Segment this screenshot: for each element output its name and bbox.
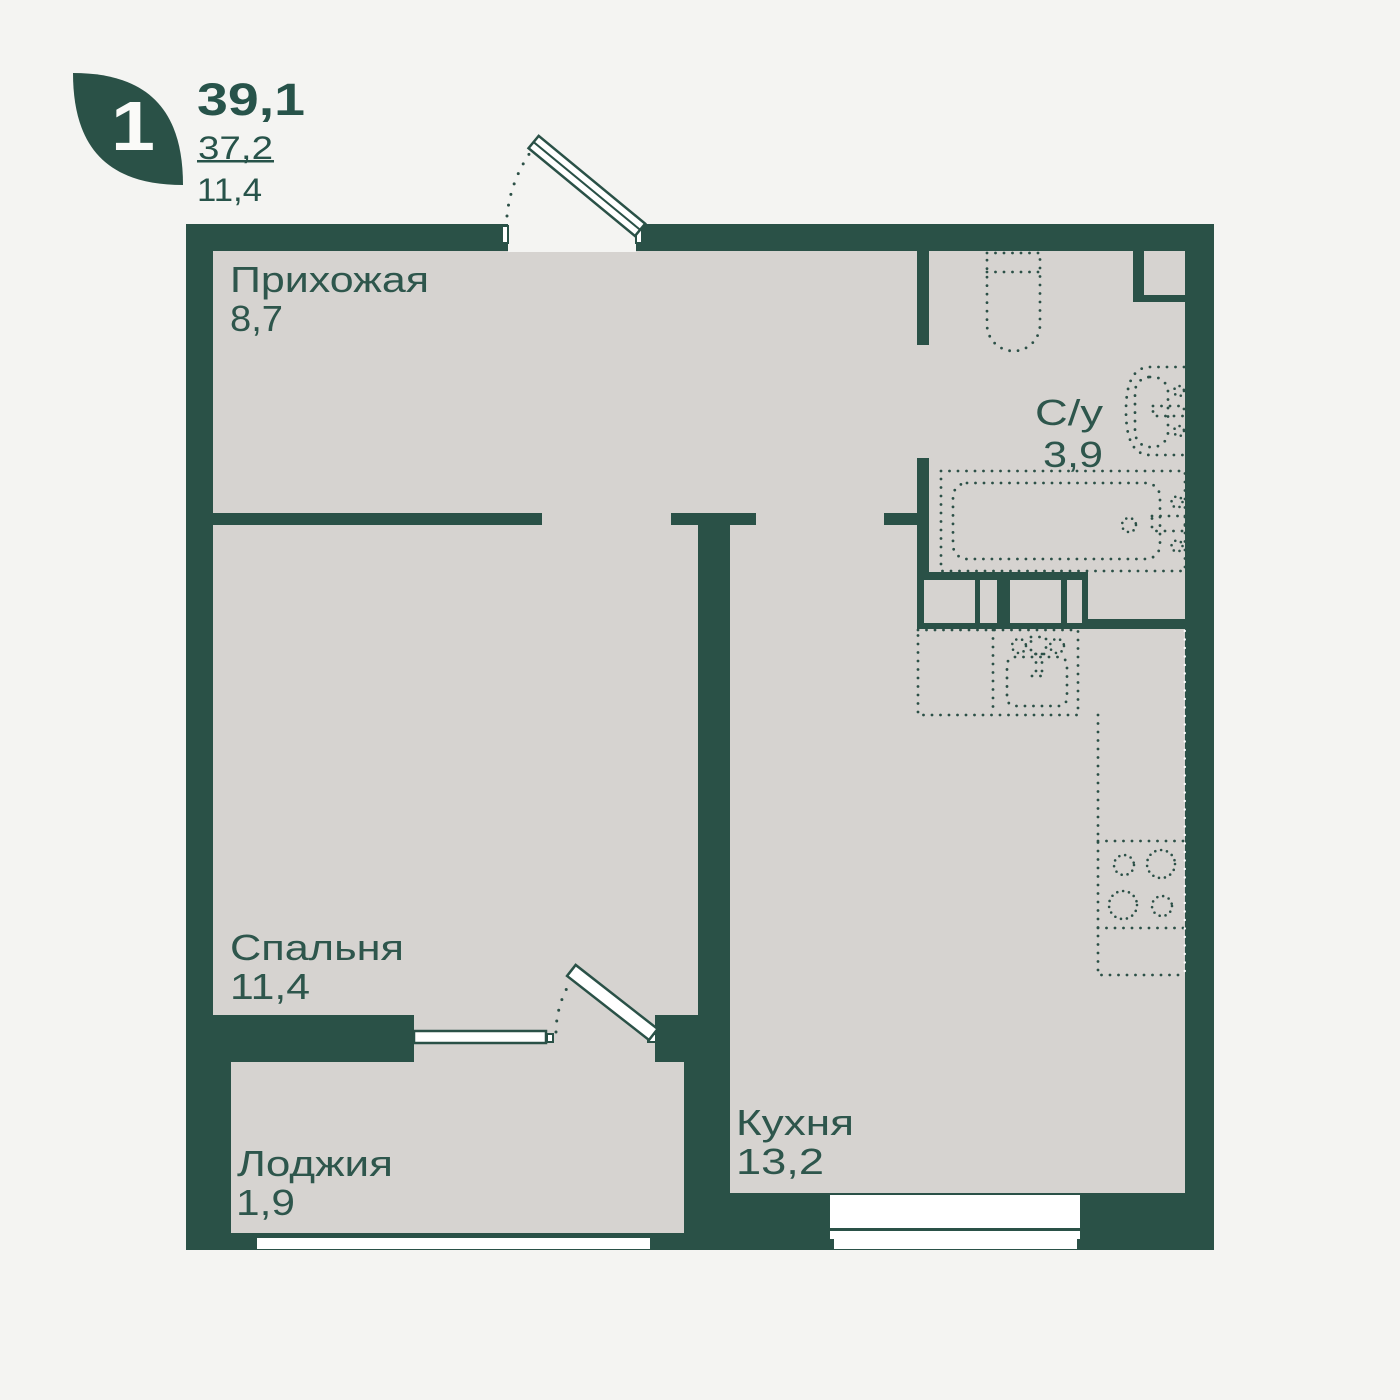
svg-text:11,4: 11,4 xyxy=(197,172,262,208)
svg-text:1,9: 1,9 xyxy=(236,1182,295,1223)
svg-text:3,9: 3,9 xyxy=(1043,434,1103,475)
svg-text:Лоджия: Лоджия xyxy=(237,1143,393,1184)
svg-text:Кухня: Кухня xyxy=(736,1102,854,1143)
svg-text:Прихожая: Прихожая xyxy=(230,259,429,300)
svg-text:8,7: 8,7 xyxy=(230,298,283,339)
svg-text:13,2: 13,2 xyxy=(736,1141,824,1182)
svg-text:39,1: 39,1 xyxy=(197,74,305,125)
svg-text:С/у: С/у xyxy=(1035,392,1103,433)
svg-text:Спальня: Спальня xyxy=(230,927,404,968)
svg-text:11,4: 11,4 xyxy=(230,966,310,1007)
svg-text:1: 1 xyxy=(111,87,155,165)
